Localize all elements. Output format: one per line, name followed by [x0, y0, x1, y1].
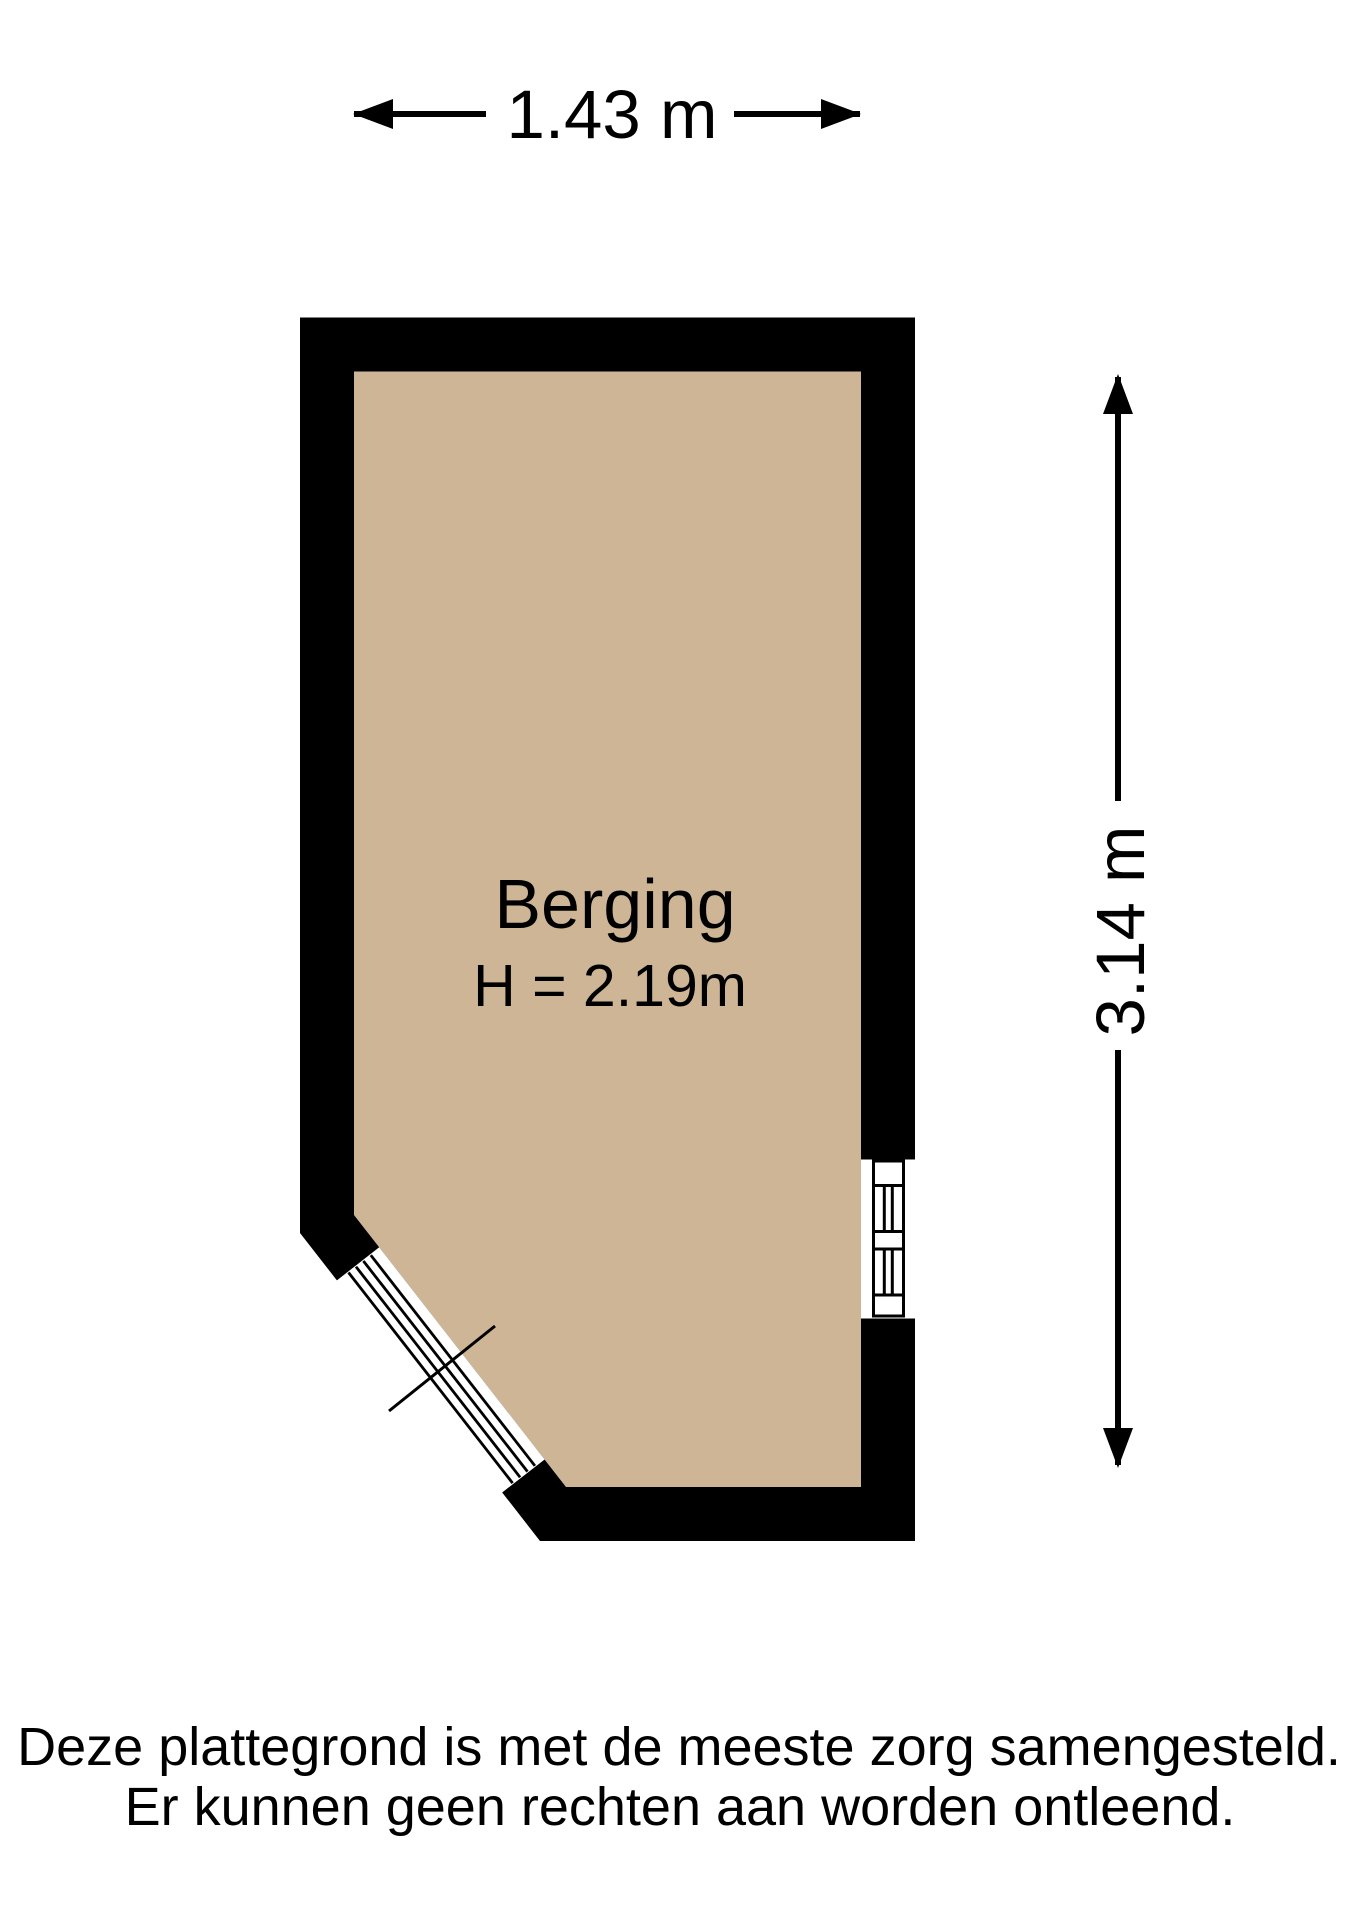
- svg-text:Berging: Berging: [494, 865, 735, 943]
- svg-text:H = 2.19m: H = 2.19m: [473, 953, 747, 1019]
- svg-text:3.14 m: 3.14 m: [1082, 826, 1159, 1037]
- svg-text:Er kunnen geen rechten aan wor: Er kunnen geen rechten aan worden ontlee…: [125, 1777, 1236, 1837]
- svg-text:1.43 m: 1.43 m: [507, 76, 718, 153]
- svg-text:Deze plattegrond is met de mee: Deze plattegrond is met de meeste zorg s…: [17, 1717, 1341, 1777]
